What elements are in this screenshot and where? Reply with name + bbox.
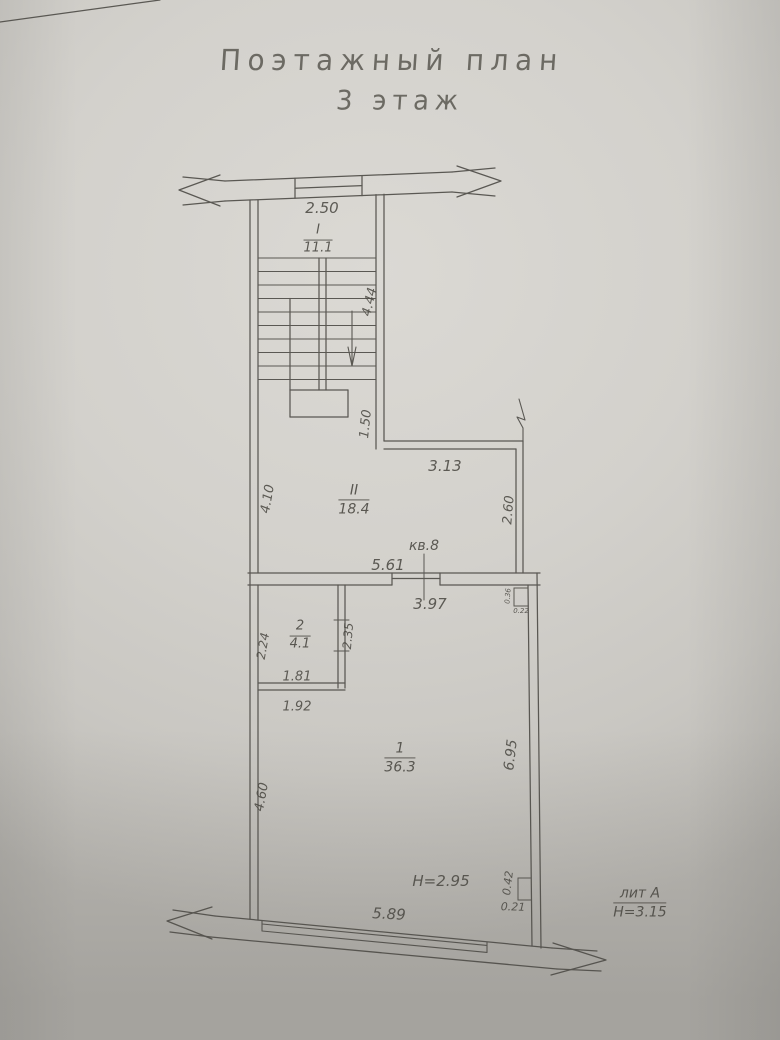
wall-break-icon [167,907,215,939]
dim-corridor-top: 3.13 [428,457,461,475]
bottom-window-icon [262,921,487,953]
room2-area: 4.1 [290,637,311,653]
scanned-floor-plan-page: { "page": { "title_line1": "Поэтажный пл… [0,0,780,1040]
page-title: Поэтажный план [219,43,565,77]
room1-area: 36.3 [384,759,415,776]
top-window-icon [295,176,362,199]
wall-break-icon [551,943,606,975]
dim-stairwell-width: 2.50 [305,199,338,217]
dim-niche-top-height: 0.36 [503,588,512,604]
wall-break-icon [179,175,225,206]
room2-number: 2 [290,620,311,637]
wall-break-icon [452,166,501,197]
ceiling-height-label: H=2.95 [412,872,469,890]
dim-niche-bottom-width: 0.21 [501,900,526,914]
dim-apartment-width: 5.61 [371,556,404,574]
dim-room1-top: 3.97 [413,595,446,613]
stair-treads [258,258,376,380]
niche-top-right [514,588,528,606]
litera-height: Н=3.15 [613,904,666,921]
stairwell-room-label: I 11.1 [304,224,333,257]
dim-room1-bottom: 5.89 [372,904,406,924]
room1-label: 1 36.3 [384,740,415,775]
page-subtitle: 3 этаж [335,86,465,117]
stair-landing [290,390,348,417]
corridor-room-label: II 18.4 [338,482,369,517]
floor-plan-drawing: Поэтажный план 3 этаж 2.50 I 11.1 4.44 1… [0,0,780,1040]
dim-stair-landing: 1.50 [357,409,375,439]
dim-niche-top-width: 0.22 [513,607,529,615]
litera-name: лит А [613,885,666,903]
dim-corridor-right: 2.60 [500,495,517,525]
apartment-number-label: кв.8 [409,538,439,554]
dim-room2-bottom-inner: 1.81 [283,670,312,685]
corridor-area: 18.4 [338,501,369,518]
stairwell-area: 11.1 [304,241,333,257]
wall-break-icon [517,399,525,441]
plan-linework [0,0,780,1040]
apartment-right-wall [528,573,541,948]
dim-room2-right: 2.35 [340,622,356,650]
litera-label: лит А Н=3.15 [613,885,666,920]
niche-bottom-right [518,878,531,900]
room1-number: 1 [384,740,415,758]
room2-label: 2 4.1 [290,620,311,653]
stair-stringer [290,258,326,390]
dim-room2-bottom-outer: 1.92 [283,700,312,715]
apartment-top-wall [248,573,540,585]
page-edge-line [0,0,160,22]
stairwell-number: I [304,224,333,241]
corridor-number: II [338,482,369,500]
